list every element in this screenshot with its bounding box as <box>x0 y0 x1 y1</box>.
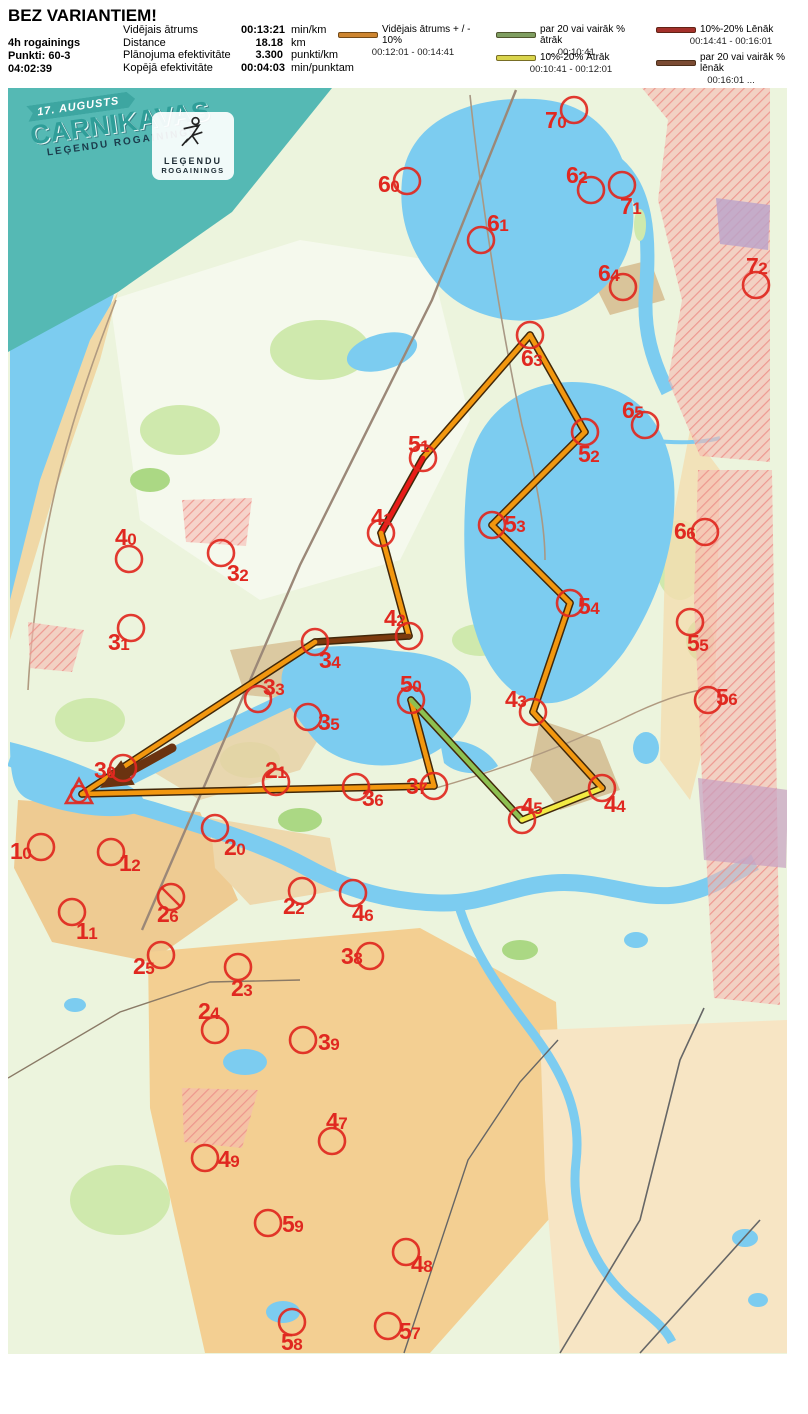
stat-label: Plānojuma efektivitāte <box>123 49 241 62</box>
legend-item-slow10: 10%-20% Lēnāk 00:14:41 - 00:16:01 <box>656 24 806 47</box>
stat-unit: km <box>291 37 306 50</box>
event-time: 04:02:39 <box>8 63 80 76</box>
legend-line-swatch <box>338 32 378 38</box>
legend-range: 00:16:01 ... <box>656 75 806 86</box>
legend-line-swatch <box>496 55 536 61</box>
stat-row-avg-speed: Vidējais ātrums 00:13:21 min/km <box>123 24 354 37</box>
page-title: BEZ VARIANTIEM! <box>8 6 157 26</box>
rogaining-report-page: BEZ VARIANTIEM! 4h rogainings Punkti: 60… <box>0 0 808 1414</box>
event-duration: 4h rogainings <box>8 37 80 50</box>
map-layers: 7060627161647263655152415366403254553142… <box>8 88 787 1354</box>
stat-row-plan-efficiency: Plānojuma efektivitāte 3.300 punkti/km <box>123 49 354 62</box>
stat-label: Vidējais ātrums <box>123 24 241 37</box>
legend-label: 10%-20% Ātrāk <box>540 52 609 63</box>
legend-item-fast10: 10%-20% Ātrāk 00:10:41 - 00:12:01 <box>496 52 646 75</box>
legend-range: 00:14:41 - 00:16:01 <box>656 36 806 47</box>
logo-text-line2: ROGAININGS <box>154 166 232 175</box>
stat-label: Distance <box>123 37 241 50</box>
legend-item-average: Vidējais ātrums + / - 10% 00:12:01 - 00:… <box>338 24 488 58</box>
stat-label: Kopējā efektivitāte <box>123 62 241 75</box>
stat-row-total-efficiency: Kopējā efektivitāte 00:04:03 min/punktam <box>123 62 354 75</box>
legend-range: 00:12:01 - 00:14:41 <box>338 47 488 58</box>
stat-value: 18.18 <box>241 37 283 50</box>
event-info: 4h rogainings Punkti: 60-3 04:02:39 <box>8 37 80 76</box>
stat-value: 3.300 <box>241 49 283 62</box>
stat-value: 00:13:21 <box>241 24 283 37</box>
stat-unit: min/km <box>291 24 326 37</box>
legend-line-swatch <box>496 32 536 38</box>
stat-unit: min/punktam <box>291 62 354 75</box>
orienteering-map: 7060627161647263655152415366403254553142… <box>8 88 787 1354</box>
restricted-purple-area <box>716 198 770 250</box>
stats-table: Vidējais ātrums 00:13:21 min/km Distance… <box>123 24 354 74</box>
legend-item-slow20: par 20 vai vairāk % lēnāk 00:16:01 ... <box>656 52 806 86</box>
stat-row-distance: Distance 18.18 km <box>123 37 354 50</box>
restricted-purple-area <box>698 778 787 868</box>
event-points: Punkti: 60-3 <box>8 50 80 63</box>
legend-label: par 20 vai vairāk % lēnāk <box>700 52 806 74</box>
legend-label: 10%-20% Lēnāk <box>700 24 773 35</box>
legend-label: Vidējais ātrums + / - 10% <box>382 24 488 46</box>
legend-line-swatch <box>656 27 696 33</box>
stat-unit: punkti/km <box>291 49 338 62</box>
stat-value: 00:04:03 <box>241 62 283 75</box>
legend-line-swatch <box>656 60 696 66</box>
club-logo: LEĢENDU ROGAININGS <box>152 112 234 180</box>
logo-text-line1: LEĢENDU <box>154 156 232 166</box>
runner-icon <box>176 116 210 150</box>
legend-range: 00:10:41 - 00:12:01 <box>496 64 646 75</box>
legend-label: par 20 vai vairāk % ātrāk <box>540 24 646 46</box>
